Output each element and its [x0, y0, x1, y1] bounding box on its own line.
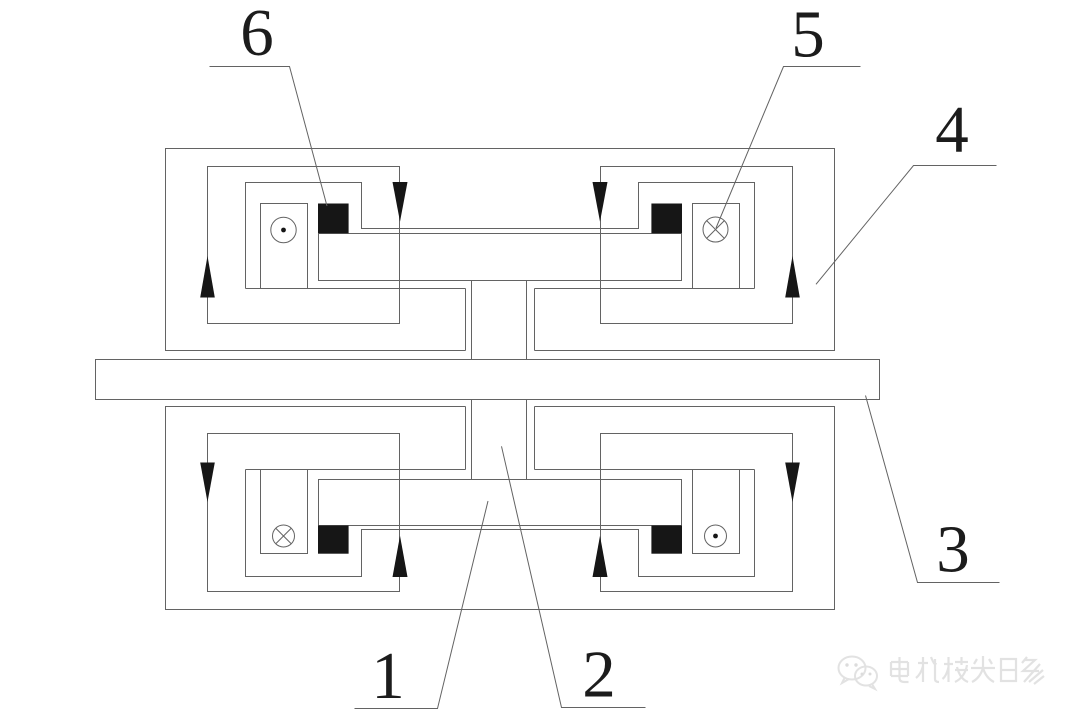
svg-text:2: 2	[582, 638, 616, 712]
svg-text:5: 5	[791, 0, 825, 72]
svg-text:3: 3	[936, 513, 970, 587]
svg-text:4: 4	[935, 93, 969, 167]
svg-text:1: 1	[371, 639, 405, 713]
svg-text:6: 6	[240, 0, 274, 70]
